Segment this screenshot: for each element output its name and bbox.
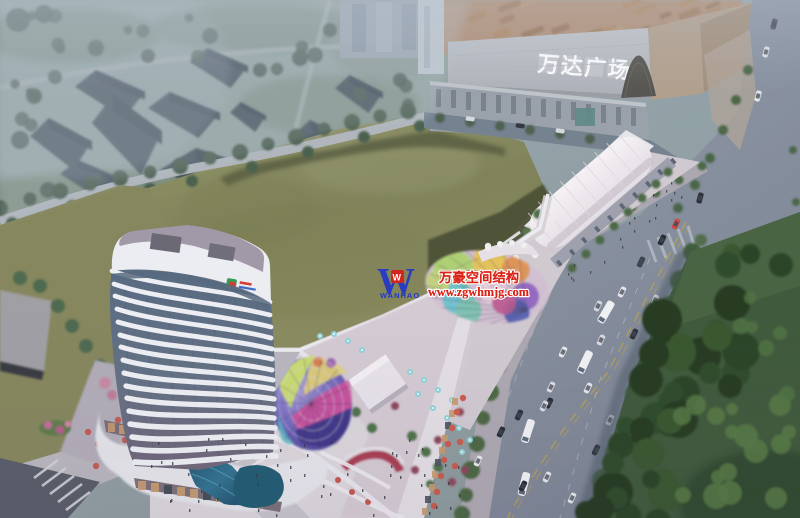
svg-text:WANHAO: WANHAO — [380, 291, 420, 300]
svg-text:W: W — [393, 273, 402, 283]
svg-text:www.zgwhmjg.com: www.zgwhmjg.com — [428, 285, 529, 299]
svg-text:万豪空间结构: 万豪空间结构 — [438, 269, 519, 285]
